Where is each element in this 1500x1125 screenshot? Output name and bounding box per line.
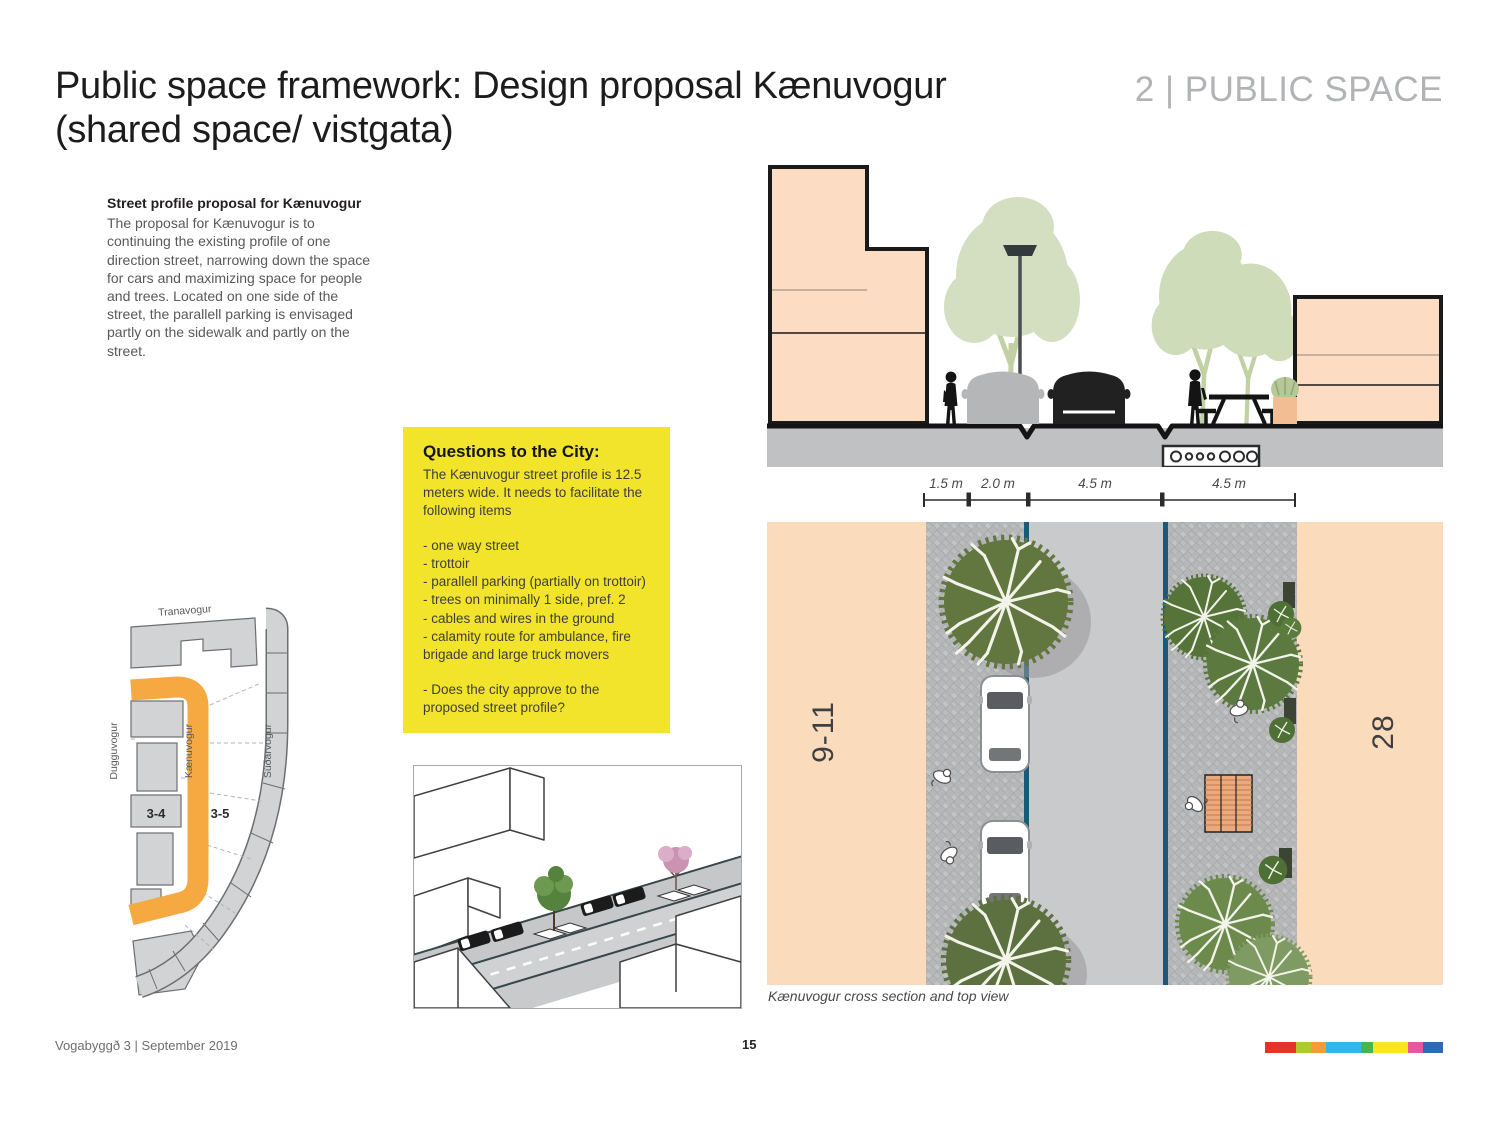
car-top-icon (978, 676, 1032, 772)
brand-color-segment (1408, 1042, 1423, 1053)
figure-caption: Kænuvogur cross section and top view (768, 988, 1008, 1004)
dimension-label: 4.5 m (1212, 476, 1246, 491)
top-view-drawing: 9-11 28 (767, 522, 1443, 985)
cross-section-view (767, 157, 1443, 467)
building-left-label: 9-11 (807, 701, 840, 763)
car-gray-icon (962, 372, 1045, 425)
questions-box-item: - trottoir (423, 555, 650, 573)
map-street-right-label: Súðarvogur (262, 723, 274, 778)
building-left (770, 167, 927, 423)
building-band-right (1297, 522, 1443, 985)
brand-color-segment (1265, 1042, 1296, 1053)
page-title-line2: (shared space/ vistgata) (55, 108, 1075, 152)
brand-color-segment (1311, 1042, 1326, 1053)
map-street-center-label: Kænuvogur (183, 723, 195, 778)
questions-box-item: - trees on minimally 1 side, pref. 2 (423, 591, 650, 609)
brand-color-bar (1265, 1042, 1443, 1053)
questions-box-item: - one way street (423, 537, 650, 555)
page-title-line1: Public space framework: Design proposal … (55, 64, 1075, 108)
utility-duct-icon (1163, 446, 1259, 467)
dimension-label: 4.5 m (1078, 476, 1112, 491)
questions-box-item: - calamity route for ambulance, fire bri… (423, 628, 650, 664)
questions-box-item: - cables and wires in the ground (423, 610, 650, 628)
questions-box-question: - Does the city approve to the proposed … (423, 681, 650, 717)
intro-heading: Street profile proposal for Kænuvogur (107, 194, 379, 212)
car-black-icon (1048, 372, 1131, 425)
building-right (1295, 297, 1441, 423)
wood-deck (1205, 775, 1252, 832)
page-number: 15 (742, 1037, 756, 1052)
map-street-left-label: Dugguvogur (108, 722, 120, 780)
dimension-label: 1.5 m (929, 476, 963, 491)
questions-box-heading: Questions to the City: (423, 442, 650, 462)
questions-box-intro: The Kænuvogur street profile is 12.5 met… (423, 466, 650, 520)
isometric-view (413, 765, 742, 1009)
footer-text: Vogabyggð 3 | September 2019 (55, 1038, 238, 1053)
intro-paragraph: Street profile proposal for Kænuvogur Th… (107, 194, 379, 360)
map-block-left-label: 3-4 (147, 806, 167, 821)
brand-color-segment (1361, 1042, 1373, 1053)
street-edge-line (1163, 522, 1168, 985)
dimension-line: 1.5 m 2.0 m 4.5 m 4.5 m (900, 476, 1320, 510)
picnic-table-icon (1198, 397, 1280, 424)
brand-color-segment (1326, 1042, 1361, 1053)
location-map: Tranavogur Dugguvogur Kænuvogur Súðarvog… (85, 593, 313, 1038)
brand-color-segment (1423, 1042, 1443, 1053)
dimension-label: 2.0 m (980, 476, 1015, 491)
brand-color-segment (1296, 1042, 1311, 1053)
top-view-plan: 9-11 28 (767, 522, 1443, 985)
person-icon (943, 372, 958, 424)
section-label: 2 | PUBLIC SPACE (1135, 70, 1443, 110)
planter-icon (1271, 377, 1299, 424)
building-right-label: 28 (1367, 714, 1400, 749)
location-map-drawing: Tranavogur Dugguvogur Kænuvogur Súðarvog… (85, 593, 313, 1038)
page-title: Public space framework: Design proposal … (55, 64, 1075, 152)
questions-box-item: - parallell parking (partially on trotto… (423, 573, 650, 591)
isometric-drawing (414, 766, 741, 1008)
dimension-line-drawing: 1.5 m 2.0 m 4.5 m 4.5 m (900, 476, 1320, 510)
intro-body: The proposal for Kænuvogur is to continu… (107, 214, 379, 360)
map-street-top-label: Tranavogur (158, 603, 213, 619)
ground (767, 428, 1443, 467)
map-block-right-label: 3-5 (211, 806, 230, 821)
brand-color-segment (1373, 1042, 1408, 1053)
cross-section-drawing (767, 157, 1443, 467)
document-page: Public space framework: Design proposal … (0, 0, 1500, 1125)
building-band-left (767, 522, 926, 985)
questions-box: Questions to the City: The Kænuvogur str… (403, 427, 670, 733)
